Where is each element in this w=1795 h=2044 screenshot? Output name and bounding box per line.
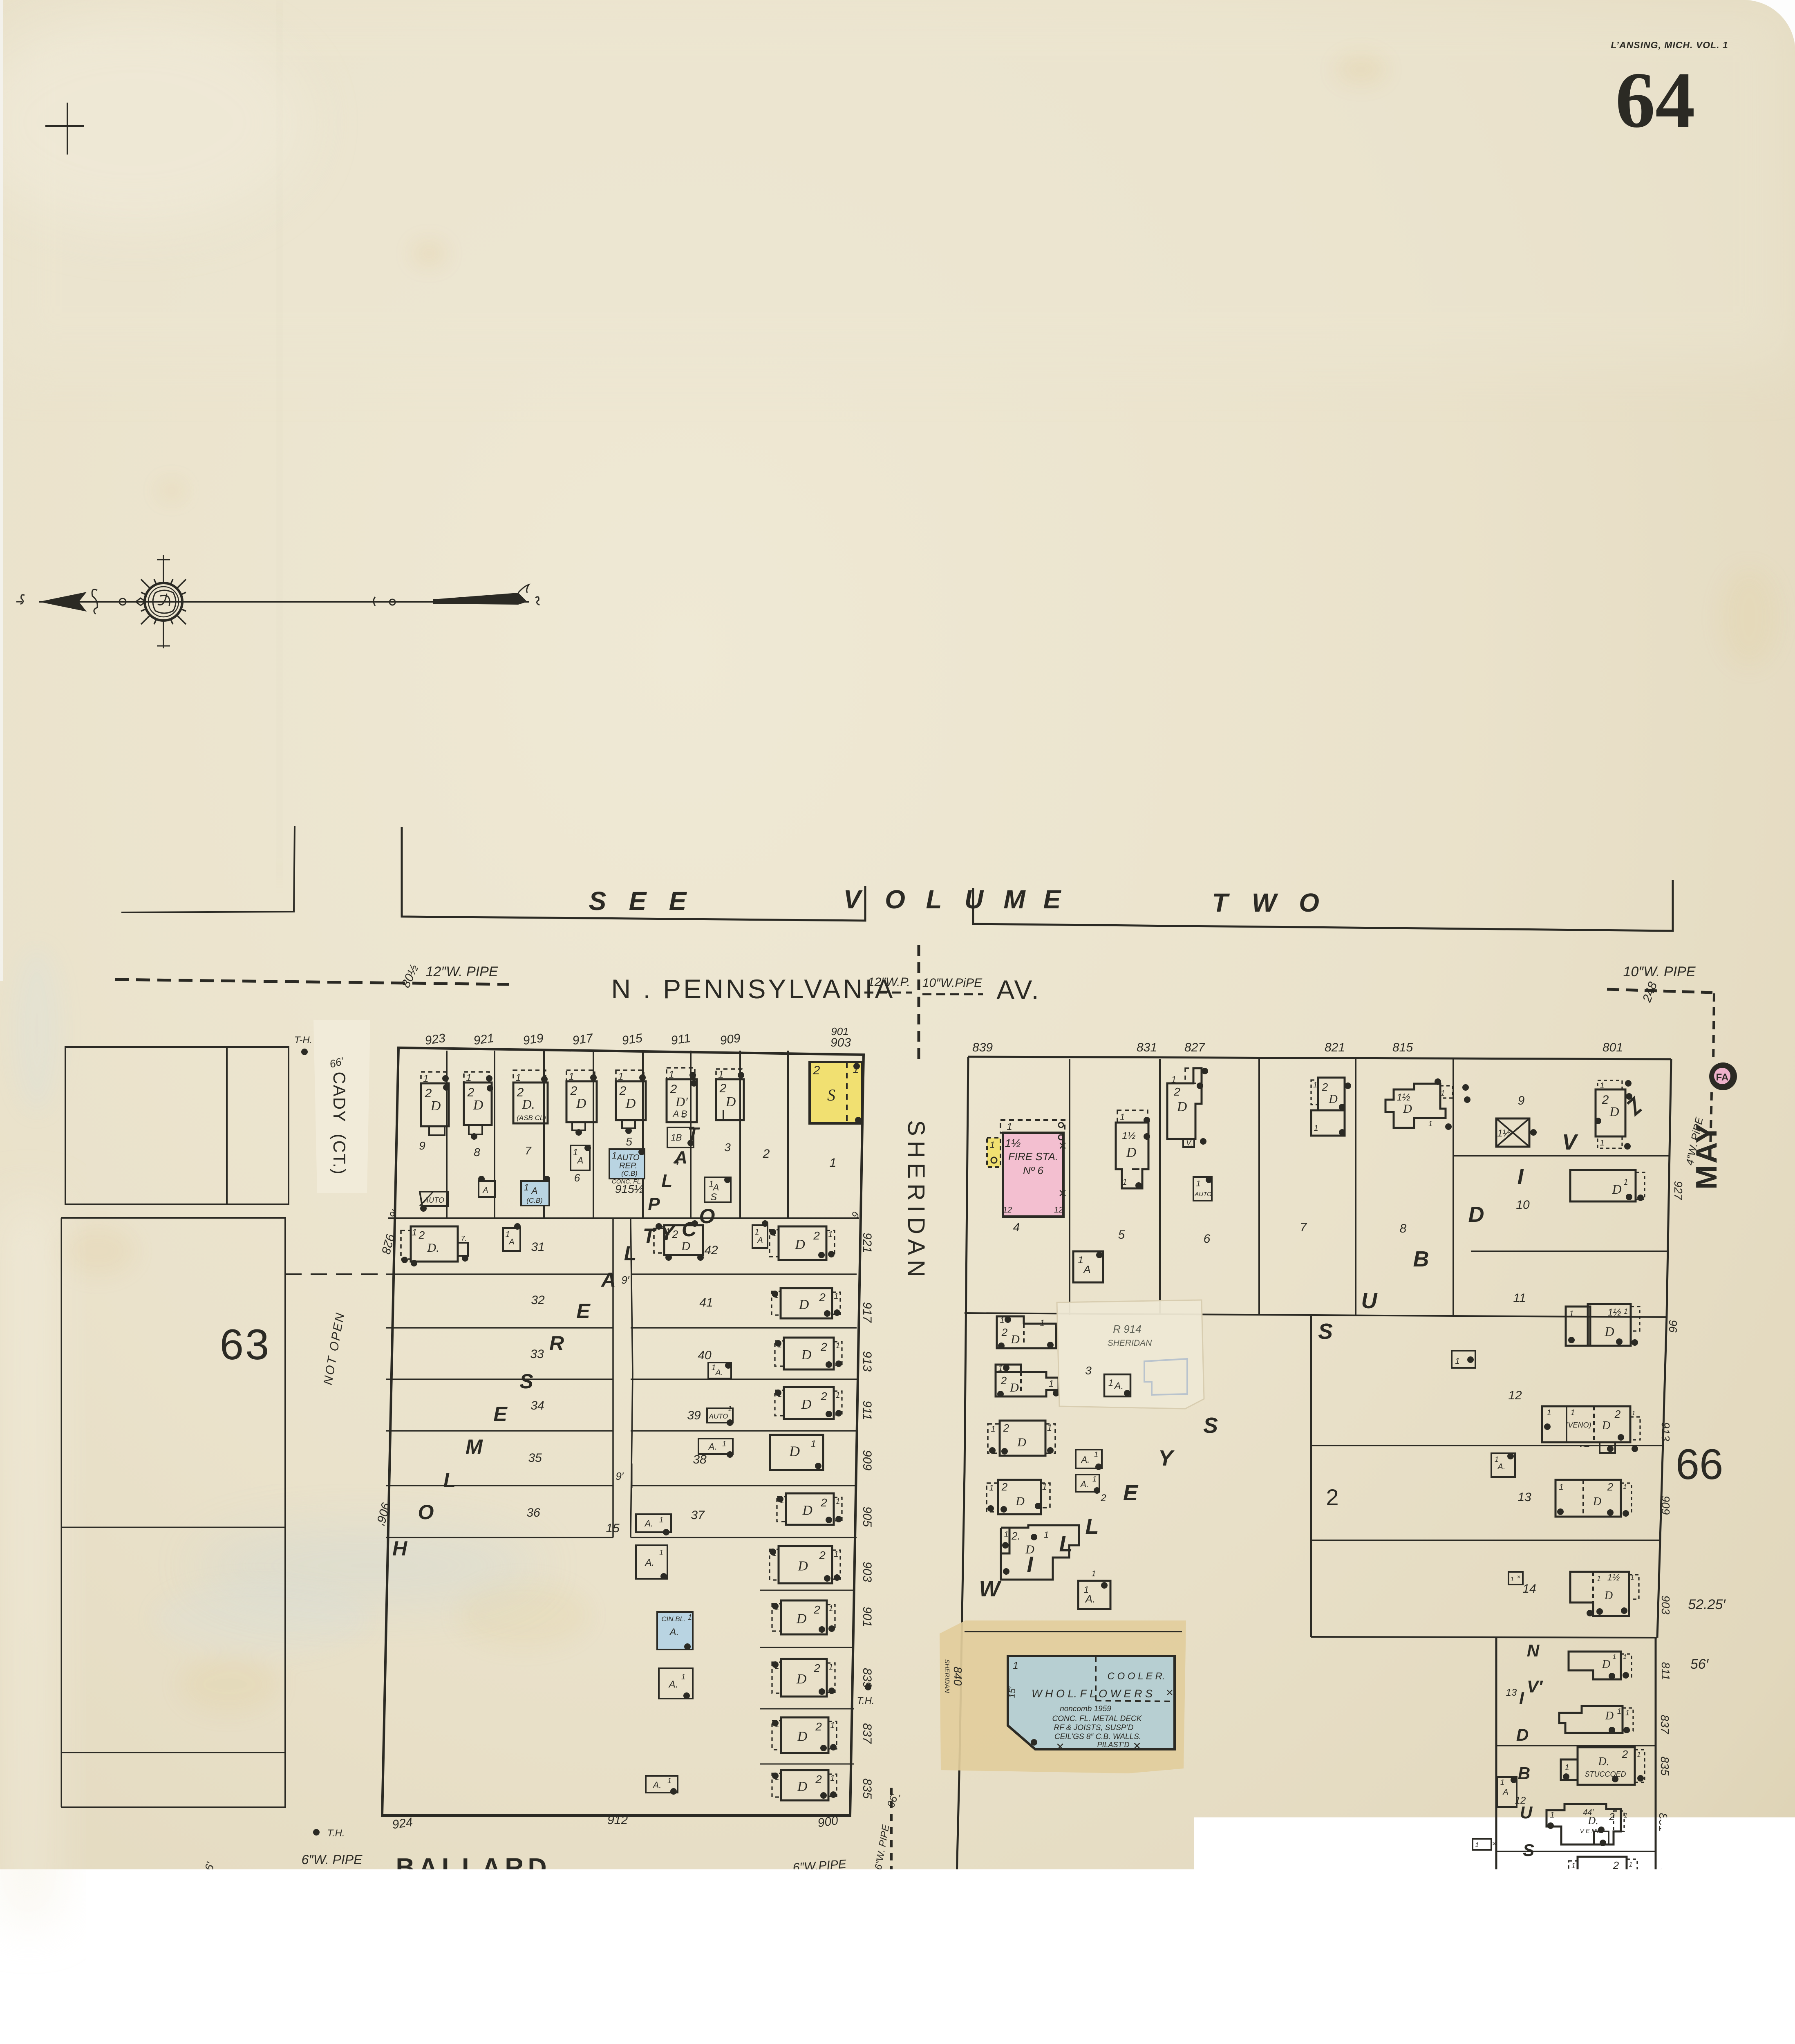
svg-text:T-H.: T-H. <box>294 1035 312 1046</box>
svg-text:T.H.: T.H. <box>857 1695 874 1706</box>
svg-text:1: 1 <box>830 1721 835 1730</box>
svg-text:E: E <box>493 1403 508 1425</box>
svg-text:1: 1 <box>810 1439 816 1450</box>
svg-text:1: 1 <box>1004 1530 1008 1539</box>
svg-text:4: 4 <box>1013 1221 1020 1234</box>
svg-text:2: 2 <box>815 1773 822 1786</box>
svg-text:919: 919 <box>522 1031 544 1048</box>
svg-text:1: 1 <box>568 1071 574 1082</box>
svg-text:825: 825 <box>1657 1929 1670 1948</box>
svg-text:×: × <box>1166 1686 1173 1699</box>
svg-text:2: 2 <box>813 1603 820 1616</box>
svg-text:11: 11 <box>1513 1291 1526 1305</box>
svg-text:56′: 56′ <box>1687 2020 1706 2036</box>
svg-text:1: 1 <box>1623 1178 1628 1187</box>
svg-text:A: A <box>1083 1263 1090 1275</box>
svg-text:2: 2 <box>813 1662 820 1674</box>
svg-text:W H O L. F L O W E R S: W H O L. F L O W E R S <box>1032 1688 1153 1700</box>
svg-text:A Ḇ: A Ḇ <box>672 1109 687 1119</box>
svg-text:SHERIDAN: SHERIDAN <box>903 1120 929 1282</box>
svg-text:A: A <box>482 1186 488 1195</box>
svg-text:A: A <box>1502 1788 1508 1797</box>
svg-text:1: 1 <box>1441 1089 1445 1097</box>
svg-text:D: D <box>1009 1381 1019 1394</box>
svg-text:L: L <box>1059 1532 1073 1556</box>
svg-text:1: 1 <box>722 1440 726 1448</box>
svg-text:150: 150 <box>757 1978 774 1989</box>
svg-text:911: 911 <box>670 1031 692 1047</box>
svg-text:S: S <box>710 1192 717 1203</box>
svg-text:903: 903 <box>1659 1596 1672 1615</box>
svg-text:33: 33 <box>530 1347 544 1361</box>
svg-text:D: D <box>1611 1182 1621 1197</box>
svg-text:2: 2 <box>719 1082 727 1095</box>
svg-text:1: 1 <box>834 1550 838 1559</box>
svg-text:1: 1 <box>991 1425 995 1434</box>
svg-text:D: D <box>797 1729 808 1744</box>
svg-text:L: L <box>1086 1514 1099 1539</box>
svg-text:2: 2 <box>813 1229 820 1242</box>
svg-text:909: 909 <box>719 1031 741 1048</box>
svg-text:3: 3 <box>724 1141 731 1154</box>
svg-text:1: 1 <box>1597 1575 1601 1583</box>
svg-text:10: 10 <box>1505 2004 1516 2015</box>
svg-text:2: 2 <box>672 1228 678 1240</box>
svg-text:D: D <box>1516 1725 1529 1744</box>
svg-text:1: 1 <box>998 1364 1003 1373</box>
svg-text:1: 1 <box>1012 1916 1016 1925</box>
svg-text:1: 1 <box>828 1663 833 1672</box>
svg-text:1½: 1½ <box>1606 1924 1618 1934</box>
svg-text:1: 1 <box>1625 1709 1629 1717</box>
svg-text:A.: A. <box>873 1954 885 1967</box>
svg-text:10: 10 <box>1516 1198 1530 1212</box>
svg-text:12: 12 <box>1508 1389 1522 1402</box>
svg-text:Y: Y <box>1158 1446 1175 1470</box>
svg-text:811: 811 <box>1659 1662 1672 1681</box>
svg-text:909: 909 <box>1659 1496 1672 1515</box>
svg-text:D: D <box>625 1096 636 1111</box>
svg-text:AUTO: AUTO <box>616 1153 639 1162</box>
svg-text:D: D <box>1403 1102 1412 1116</box>
svg-text:A: A <box>1520 1920 1525 1928</box>
svg-text:2: 2 <box>819 1291 826 1304</box>
svg-text:BALLARD: BALLARD <box>396 1853 551 1882</box>
svg-text:S: S <box>1524 1875 1536 1894</box>
svg-text:STUCCOED: STUCCOED <box>1585 1770 1626 1778</box>
svg-text:15: 15 <box>606 1522 620 1535</box>
svg-text:L: L <box>926 885 942 914</box>
svg-text:D: D <box>1041 1929 1051 1942</box>
svg-text:T.H.: T.H. <box>327 1828 345 1839</box>
svg-text:1: 1 <box>1629 1861 1633 1868</box>
svg-text:D: D <box>789 1443 800 1459</box>
svg-text:U: U <box>965 885 984 914</box>
svg-text:1: 1 <box>681 1673 685 1681</box>
svg-text:D: D <box>1602 1419 1610 1432</box>
svg-text:1: 1 <box>830 1156 837 1170</box>
svg-text:(ASB CL): (ASB CL) <box>517 1114 546 1122</box>
svg-text:D: D <box>1593 1495 1601 1508</box>
svg-text:D: D <box>725 1094 736 1109</box>
svg-text:1½: 1½ <box>1397 1092 1410 1103</box>
svg-text:A: A <box>712 1182 719 1192</box>
svg-text:1: 1 <box>1094 1450 1098 1459</box>
svg-text:5: 5 <box>626 1135 632 1148</box>
svg-text:S: S <box>589 886 607 916</box>
svg-text:(C.B): (C.B) <box>621 1170 638 1177</box>
svg-text:SHERIDAN: SHERIDAN <box>943 1659 950 1693</box>
svg-text:1½: 1½ <box>1005 1137 1021 1150</box>
svg-text:37: 37 <box>691 1508 705 1522</box>
svg-text:915: 915 <box>621 1031 643 1048</box>
svg-text:L: L <box>443 1469 456 1492</box>
svg-text:2: 2 <box>1614 1408 1621 1420</box>
svg-text:50: 50 <box>443 1979 454 1990</box>
svg-text:1: 1 <box>1314 1124 1318 1133</box>
svg-text:40: 40 <box>459 1981 470 1992</box>
svg-text:O: O <box>1299 888 1319 917</box>
svg-text:U: U <box>1520 1803 1533 1822</box>
svg-text:835: 835 <box>1658 1757 1671 1776</box>
svg-text:1: 1 <box>1632 1410 1636 1417</box>
svg-text:1: 1 <box>1617 1707 1621 1715</box>
svg-text:1: 1 <box>1623 1654 1627 1661</box>
svg-text:909: 909 <box>860 1450 874 1470</box>
svg-text:14: 14 <box>1522 1582 1536 1596</box>
svg-text:815: 815 <box>1392 1041 1413 1054</box>
svg-text:U: U <box>1361 1289 1378 1313</box>
svg-text:D: D <box>796 1611 807 1627</box>
svg-text:2: 2 <box>1622 1748 1628 1760</box>
svg-text:D: D <box>1605 1710 1614 1722</box>
svg-text:1: 1 <box>1000 1316 1004 1325</box>
svg-text:×: × <box>1056 1739 1064 1755</box>
svg-text:1: 1 <box>1559 1483 1563 1492</box>
svg-text:831: 831 <box>1657 1813 1670 1832</box>
svg-text:D.: D. <box>1587 1815 1598 1827</box>
svg-text:1B: 1B <box>671 1132 682 1143</box>
svg-text:noncomb 1959: noncomb 1959 <box>1060 1705 1111 1713</box>
svg-text:1: 1 <box>688 1613 692 1621</box>
svg-text:1: 1 <box>1628 1925 1632 1932</box>
svg-text:903: 903 <box>860 1562 874 1582</box>
svg-text:20: 20 <box>489 1983 500 1995</box>
svg-text:921: 921 <box>473 1031 495 1048</box>
svg-text:L: L <box>662 1171 673 1191</box>
svg-text:D: D <box>797 1779 808 1794</box>
svg-text:E: E <box>669 886 687 916</box>
svg-text:840: 840 <box>951 1667 964 1686</box>
svg-text:2: 2 <box>763 1147 770 1161</box>
svg-text:1: 1 <box>828 1604 833 1613</box>
svg-text:12″W.P.: 12″W.P. <box>868 975 910 989</box>
svg-text:A.: A. <box>708 1441 717 1452</box>
svg-text:1: 1 <box>1091 1569 1096 1578</box>
svg-text:(VENO): (VENO) <box>1566 1421 1591 1429</box>
svg-text:D: D <box>1126 1145 1137 1160</box>
svg-text:A: A <box>531 1186 538 1196</box>
svg-text:2: 2 <box>1326 1484 1338 1510</box>
svg-text:D: D <box>576 1096 586 1111</box>
svg-text:I: I <box>1517 1165 1524 1189</box>
svg-text:D: D <box>801 1347 812 1363</box>
svg-text:D: D <box>1604 1589 1613 1602</box>
svg-text:1: 1 <box>1455 1357 1459 1366</box>
svg-text:D: D <box>802 1503 812 1518</box>
svg-text:FIRE STA.: FIRE STA. <box>1008 1150 1058 1163</box>
svg-text:CEIL’GS 8″ C.B. WALLS.: CEIL’GS 8″ C.B. WALLS. <box>1054 1732 1141 1741</box>
svg-text:D: D <box>796 1672 807 1687</box>
svg-text:6: 6 <box>1204 1232 1211 1246</box>
svg-text:1: 1 <box>1550 1811 1554 1820</box>
svg-text:9′: 9′ <box>615 1470 624 1482</box>
svg-text:1: 1 <box>1108 1378 1113 1388</box>
svg-text:1: 1 <box>1623 1484 1627 1490</box>
svg-text:6″W. PIPE: 6″W. PIPE <box>302 1852 363 1867</box>
svg-text:12: 12 <box>1054 1206 1063 1215</box>
svg-text:1: 1 <box>1637 1750 1641 1759</box>
svg-text:D: D <box>473 1098 483 1113</box>
svg-text:41: 41 <box>699 1296 713 1309</box>
svg-text:D: D <box>1468 1202 1484 1227</box>
svg-text:1: 1 <box>718 1069 723 1080</box>
svg-text:1: 1 <box>612 1150 617 1161</box>
svg-text:923: 923 <box>424 1031 446 1048</box>
svg-text:A.: A. <box>1081 1455 1090 1465</box>
svg-text:1: 1 <box>1196 1179 1200 1188</box>
svg-text:D: D <box>797 1559 808 1574</box>
svg-text:10″W.PiPE: 10″W.PiPE <box>922 976 983 990</box>
svg-text:2: 2 <box>815 1720 822 1733</box>
svg-text:D: D <box>1177 1099 1187 1114</box>
svg-text:3: 3 <box>1085 1364 1092 1377</box>
svg-text:12″W. PIPE: 12″W. PIPE <box>425 964 498 979</box>
svg-text:A: A <box>1518 1895 1524 1903</box>
svg-text:1: 1 <box>1500 1778 1504 1786</box>
svg-text:1: 1 <box>1049 1378 1054 1389</box>
svg-text:11: 11 <box>1501 1900 1509 1909</box>
svg-text:V: V <box>844 885 863 914</box>
svg-text:1: 1 <box>667 1777 671 1785</box>
svg-text:1: 1 <box>1571 1862 1576 1870</box>
svg-text:1: 1 <box>1624 1307 1628 1316</box>
svg-text:839: 839 <box>972 1041 993 1054</box>
svg-text:2: 2 <box>813 1064 820 1077</box>
svg-text:W: W <box>1252 888 1278 917</box>
svg-text:801: 801 <box>1603 1041 1623 1054</box>
svg-text:1: 1 <box>1007 1121 1012 1132</box>
svg-text:D: D <box>1598 1936 1606 1948</box>
svg-text:A.: A. <box>1080 1479 1089 1489</box>
svg-text:I: I <box>1532 1945 1537 1964</box>
svg-text:A.: A. <box>668 1679 678 1690</box>
svg-text:1: 1 <box>1547 1408 1551 1417</box>
svg-text:AUTO: AUTO <box>1194 1191 1212 1198</box>
svg-text:1: 1 <box>1092 1475 1097 1483</box>
svg-text:12: 12 <box>1003 1206 1012 1215</box>
svg-text:821: 821 <box>1325 1041 1345 1054</box>
svg-text:AV.: AV. <box>996 975 1040 1005</box>
svg-text:1: 1 <box>1080 1932 1084 1941</box>
svg-text:2: 2 <box>820 1390 827 1403</box>
svg-text:8: 8 <box>1400 1222 1407 1235</box>
svg-text:A: A <box>674 1148 687 1168</box>
svg-text:(C.B): (C.B) <box>526 1197 543 1204</box>
svg-text:D′: D′ <box>675 1094 688 1109</box>
svg-text:×: × <box>1059 1138 1067 1154</box>
svg-text:2: 2 <box>820 1496 827 1509</box>
svg-text:7.: 7. <box>461 1235 467 1243</box>
svg-text:1: 1 <box>1013 1660 1018 1671</box>
svg-text:E: E <box>576 1300 591 1322</box>
svg-text:6: 6 <box>574 1172 580 1184</box>
svg-text:1: 1 <box>1631 1574 1634 1581</box>
svg-text:W: W <box>979 1577 1002 1601</box>
svg-text:7: 7 <box>525 1144 532 1157</box>
svg-text:10″W. PIPE: 10″W. PIPE <box>1623 964 1695 979</box>
svg-text:1: 1 <box>1600 1081 1604 1090</box>
svg-text:R: R <box>549 1332 564 1355</box>
svg-text:1: 1 <box>1600 1139 1604 1148</box>
svg-text:D: D <box>1328 1092 1338 1106</box>
svg-text:827: 827 <box>1184 1041 1205 1054</box>
svg-text:D: D <box>430 1098 441 1114</box>
svg-text:1: 1 <box>835 1497 840 1506</box>
svg-text:D: D <box>1017 1436 1026 1449</box>
svg-text:2: 2 <box>1602 1093 1609 1107</box>
svg-text:1½: 1½ <box>1497 1128 1511 1139</box>
svg-text:837: 837 <box>1658 1715 1671 1735</box>
svg-text:1: 1 <box>524 1182 529 1192</box>
svg-text:34: 34 <box>530 1399 544 1412</box>
svg-text:D: D <box>799 1297 809 1312</box>
svg-text:RF & JOISTS, SUSP’D: RF & JOISTS, SUSP’D <box>1054 1724 1134 1732</box>
svg-text:35: 35 <box>528 1451 542 1465</box>
svg-text:A.: A. <box>644 1518 654 1529</box>
svg-text:1: 1 <box>618 1071 623 1082</box>
svg-text:REP.: REP. <box>619 1161 637 1170</box>
svg-text:913: 913 <box>860 1351 874 1372</box>
svg-text:2: 2 <box>819 1549 826 1562</box>
svg-text:1: 1 <box>1613 1654 1616 1661</box>
svg-text:1: 1 <box>1122 1178 1127 1187</box>
svg-text:2: 2 <box>820 1340 827 1353</box>
svg-text:I: I <box>1519 1688 1524 1708</box>
svg-text:A.: A. <box>645 1557 655 1568</box>
svg-text:2: 2 <box>1001 1326 1008 1338</box>
svg-text:2: 2 <box>1100 1493 1106 1504</box>
svg-text:D.: D. <box>427 1241 439 1255</box>
svg-text:1: 1 <box>830 1774 835 1783</box>
svg-text:R: R <box>1526 1979 1539 1998</box>
svg-text:1: 1 <box>466 1072 471 1083</box>
svg-text:M: M <box>1003 885 1026 914</box>
svg-text:905: 905 <box>860 1506 874 1527</box>
svg-text:2: 2 <box>1322 1081 1328 1093</box>
svg-text:2: 2 <box>1001 1481 1008 1493</box>
svg-text:1: 1 <box>1564 1763 1569 1772</box>
svg-text:N . PENNSYLVANIA: N . PENNSYLVANIA <box>611 974 895 1004</box>
svg-text:912: 912 <box>607 1813 628 1827</box>
svg-text:100: 100 <box>678 1979 696 1991</box>
svg-text:Nº 6: Nº 6 <box>1023 1164 1043 1177</box>
svg-text:N: N <box>1526 1910 1539 1929</box>
svg-text:835: 835 <box>860 1778 874 1799</box>
svg-text:A.: A. <box>1085 1593 1096 1605</box>
svg-text:1: 1 <box>1475 1842 1479 1849</box>
svg-text:831: 831 <box>1137 1041 1157 1054</box>
svg-text:S: S <box>1203 1413 1218 1438</box>
svg-text:2.: 2. <box>1011 1530 1021 1542</box>
svg-text:39: 39 <box>687 1409 701 1422</box>
svg-text:1: 1 <box>1313 1081 1317 1089</box>
svg-text:P: P <box>1524 2013 1536 2032</box>
svg-text:1: 1 <box>423 1073 428 1084</box>
svg-text:AUTO: AUTO <box>423 1196 444 1204</box>
svg-text:13: 13 <box>1517 1490 1531 1504</box>
svg-text:1: 1 <box>1171 1074 1176 1085</box>
svg-text:×: × <box>1517 1573 1520 1580</box>
svg-text:10: 10 <box>504 1984 516 1996</box>
svg-text:D.: D. <box>521 1097 535 1112</box>
svg-text:S: S <box>1318 1319 1333 1344</box>
svg-text:36: 36 <box>526 1506 540 1520</box>
svg-text:1: 1 <box>834 1292 838 1301</box>
svg-text:D: D <box>1609 1104 1619 1119</box>
svg-text:1½: 1½ <box>1607 1307 1621 1318</box>
svg-text:D: D <box>801 1397 812 1412</box>
svg-text:N: N <box>1527 1641 1540 1660</box>
svg-text:32: 32 <box>531 1293 545 1307</box>
svg-text:A.: A. <box>715 1368 723 1377</box>
svg-text:CADY (CT.): CADY (CT.) <box>330 1072 349 1175</box>
svg-text:L’ANSING, MICH. VOL. 1: L’ANSING, MICH. VOL. 1 <box>1611 40 1728 50</box>
svg-text:1: 1 <box>990 1140 995 1150</box>
svg-text:V: V <box>1562 1130 1578 1154</box>
svg-text:1: 1 <box>1624 1812 1628 1819</box>
svg-text:T: T <box>688 1124 700 1144</box>
svg-text:96: 96 <box>1667 1320 1679 1333</box>
svg-text:H: H <box>392 1537 407 1560</box>
svg-text:1: 1 <box>665 1226 670 1237</box>
svg-text:1: 1 <box>1047 1423 1052 1433</box>
svg-text:1: 1 <box>1120 1112 1125 1122</box>
svg-text:0: 0 <box>524 1981 530 1992</box>
svg-text:×: × <box>1059 1186 1067 1201</box>
svg-text:13: 13 <box>1506 1687 1517 1698</box>
svg-text:1: 1 <box>1515 1916 1519 1923</box>
svg-text:9: 9 <box>419 1139 425 1152</box>
svg-text:52.25′: 52.25′ <box>1688 1597 1726 1612</box>
svg-text:2: 2 <box>1022 1914 1028 1926</box>
svg-text:927: 927 <box>1672 1181 1685 1201</box>
svg-text:D: D <box>1604 1324 1614 1339</box>
svg-text:8: 8 <box>474 1146 480 1159</box>
svg-text:2: 2 <box>1609 1811 1614 1822</box>
svg-text:A: A <box>600 1269 616 1291</box>
svg-text:9: 9 <box>1518 1094 1525 1107</box>
svg-text:×: × <box>1492 1840 1497 1848</box>
svg-text:S: S <box>519 1370 533 1393</box>
svg-text:1½: 1½ <box>1607 1572 1620 1582</box>
svg-text:M: M <box>466 1435 483 1458</box>
svg-text:SHERIDAN: SHERIDAN <box>1108 1338 1152 1348</box>
svg-text:S: S <box>827 1086 835 1104</box>
svg-text:2: 2 <box>1607 1481 1614 1493</box>
svg-text:T: T <box>1212 888 1230 917</box>
svg-text:1: 1 <box>1569 1309 1573 1318</box>
